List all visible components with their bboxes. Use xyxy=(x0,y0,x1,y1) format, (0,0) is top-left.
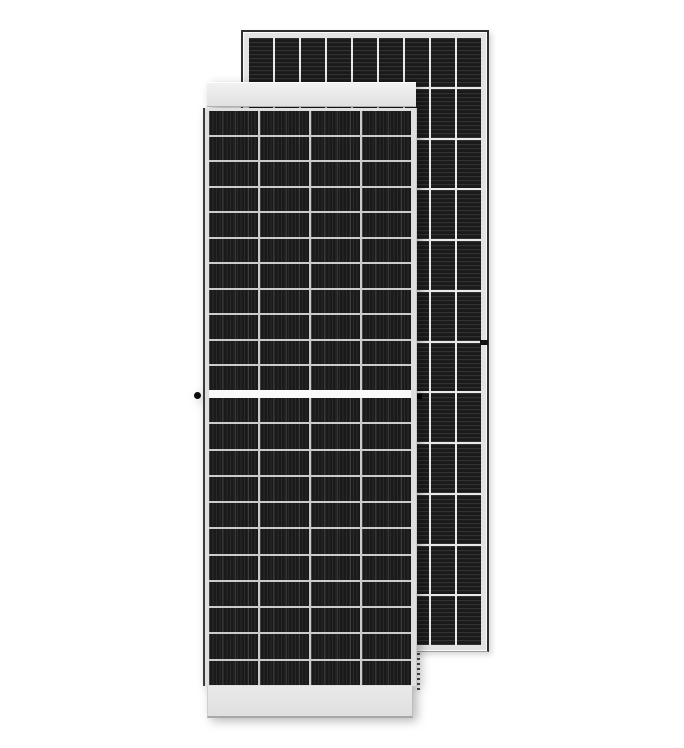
solar-cell xyxy=(362,634,411,658)
solar-cell xyxy=(362,188,411,212)
solar-cell xyxy=(327,38,351,87)
solar-cell xyxy=(311,608,360,632)
solar-cell xyxy=(249,38,273,87)
solar-cell xyxy=(362,264,411,288)
grounding-hole-dot xyxy=(194,392,201,399)
solar-cell xyxy=(379,38,403,87)
vent-hole-dashes xyxy=(417,653,420,693)
solar-cell xyxy=(362,608,411,632)
solar-cell xyxy=(260,634,309,658)
frame-mounting-hole-mark xyxy=(480,340,488,345)
solar-cell xyxy=(362,137,411,161)
solar-cell xyxy=(260,556,309,580)
solar-cell xyxy=(431,190,455,239)
solar-cell xyxy=(457,292,481,341)
solar-cell xyxy=(457,140,481,189)
solar-cell xyxy=(431,343,455,392)
front-lower-cell-grid xyxy=(209,398,411,685)
solar-cell xyxy=(209,213,258,237)
solar-cell xyxy=(209,162,258,186)
solar-cell xyxy=(362,239,411,263)
solar-cell xyxy=(431,495,455,544)
solar-cell xyxy=(209,608,258,632)
solar-cell xyxy=(431,38,455,87)
solar-cell xyxy=(362,290,411,314)
solar-cell xyxy=(260,582,309,606)
solar-cell xyxy=(362,477,411,501)
solar-cell xyxy=(362,398,411,422)
solar-cell xyxy=(311,451,360,475)
front-panel-laminate xyxy=(209,111,411,686)
solar-cell xyxy=(311,556,360,580)
solar-cell xyxy=(457,343,481,392)
solar-cell xyxy=(431,292,455,341)
solar-cell xyxy=(260,503,309,527)
solar-cell xyxy=(362,582,411,606)
solar-cell xyxy=(362,661,411,685)
solar-cell xyxy=(209,503,258,527)
solar-cell xyxy=(362,162,411,186)
solar-cell xyxy=(209,315,258,339)
solar-cell xyxy=(260,111,309,135)
solar-cell xyxy=(260,264,309,288)
solar-cell xyxy=(260,424,309,448)
product-image-stage xyxy=(0,0,684,748)
solar-cell xyxy=(311,477,360,501)
solar-cell xyxy=(209,264,258,288)
solar-cell xyxy=(431,241,455,290)
solar-cell xyxy=(311,634,360,658)
solar-cell xyxy=(260,661,309,685)
solar-cell xyxy=(311,366,360,390)
front-upper-cell-grid xyxy=(209,111,411,390)
solar-cell xyxy=(431,596,455,645)
solar-cell xyxy=(209,634,258,658)
solar-cell xyxy=(260,341,309,365)
solar-cell xyxy=(431,546,455,595)
solar-cell xyxy=(311,315,360,339)
solar-cell xyxy=(209,188,258,212)
solar-cell xyxy=(362,451,411,475)
solar-cell xyxy=(362,529,411,553)
solar-cell xyxy=(457,444,481,493)
solar-cell xyxy=(311,503,360,527)
solar-cell xyxy=(209,661,258,685)
solar-cell xyxy=(362,213,411,237)
solar-cell xyxy=(457,38,481,87)
solar-cell xyxy=(260,608,309,632)
solar-cell xyxy=(362,424,411,448)
solar-cell xyxy=(311,239,360,263)
back-frame-hole-mark xyxy=(417,394,422,399)
solar-cell xyxy=(209,477,258,501)
solar-cell xyxy=(431,393,455,442)
front-top-frame-band xyxy=(207,82,416,107)
solar-cell xyxy=(362,341,411,365)
solar-cell xyxy=(209,366,258,390)
solar-cell xyxy=(260,239,309,263)
solar-cell xyxy=(311,264,360,288)
solar-cell xyxy=(209,341,258,365)
solar-cell xyxy=(275,38,299,87)
solar-cell xyxy=(311,661,360,685)
solar-cell xyxy=(260,398,309,422)
solar-cell xyxy=(260,188,309,212)
solar-cell xyxy=(209,290,258,314)
solar-cell xyxy=(311,341,360,365)
solar-cell xyxy=(431,444,455,493)
solar-cell xyxy=(301,38,325,87)
solar-cell xyxy=(457,596,481,645)
solar-cell xyxy=(311,398,360,422)
solar-cell xyxy=(260,315,309,339)
solar-cell xyxy=(405,38,429,87)
solar-cell xyxy=(209,424,258,448)
solar-cell xyxy=(209,451,258,475)
solar-cell xyxy=(353,38,377,87)
solar-cell xyxy=(457,241,481,290)
solar-cell xyxy=(260,477,309,501)
solar-cell xyxy=(209,529,258,553)
solar-cell xyxy=(311,290,360,314)
solar-cell xyxy=(209,111,258,135)
solar-cell xyxy=(457,89,481,138)
solar-cell xyxy=(431,140,455,189)
solar-cell xyxy=(311,162,360,186)
solar-cell xyxy=(431,89,455,138)
solar-cell xyxy=(311,137,360,161)
solar-cell xyxy=(311,424,360,448)
solar-cell xyxy=(260,290,309,314)
solar-cell xyxy=(362,366,411,390)
solar-cell xyxy=(362,111,411,135)
solar-cell xyxy=(311,188,360,212)
solar-cell xyxy=(311,213,360,237)
solar-cell xyxy=(260,137,309,161)
solar-cell xyxy=(209,398,258,422)
solar-cell xyxy=(260,451,309,475)
front-bottom-frame-band xyxy=(207,686,413,718)
solar-cell xyxy=(362,503,411,527)
solar-cell xyxy=(311,111,360,135)
solar-cell xyxy=(209,239,258,263)
solar-cell xyxy=(209,137,258,161)
solar-cell xyxy=(362,315,411,339)
front-panel-frame xyxy=(203,108,417,686)
solar-cell xyxy=(260,162,309,186)
solar-cell xyxy=(457,393,481,442)
solar-cell xyxy=(260,529,309,553)
solar-cell xyxy=(209,556,258,580)
center-divider xyxy=(209,390,411,398)
solar-cell xyxy=(260,366,309,390)
solar-cell xyxy=(457,495,481,544)
solar-cell xyxy=(311,582,360,606)
solar-cell xyxy=(209,582,258,606)
solar-cell xyxy=(260,213,309,237)
solar-cell xyxy=(457,190,481,239)
solar-cell xyxy=(457,546,481,595)
solar-cell xyxy=(311,529,360,553)
front-solar-panel xyxy=(203,82,417,718)
solar-cell xyxy=(362,556,411,580)
